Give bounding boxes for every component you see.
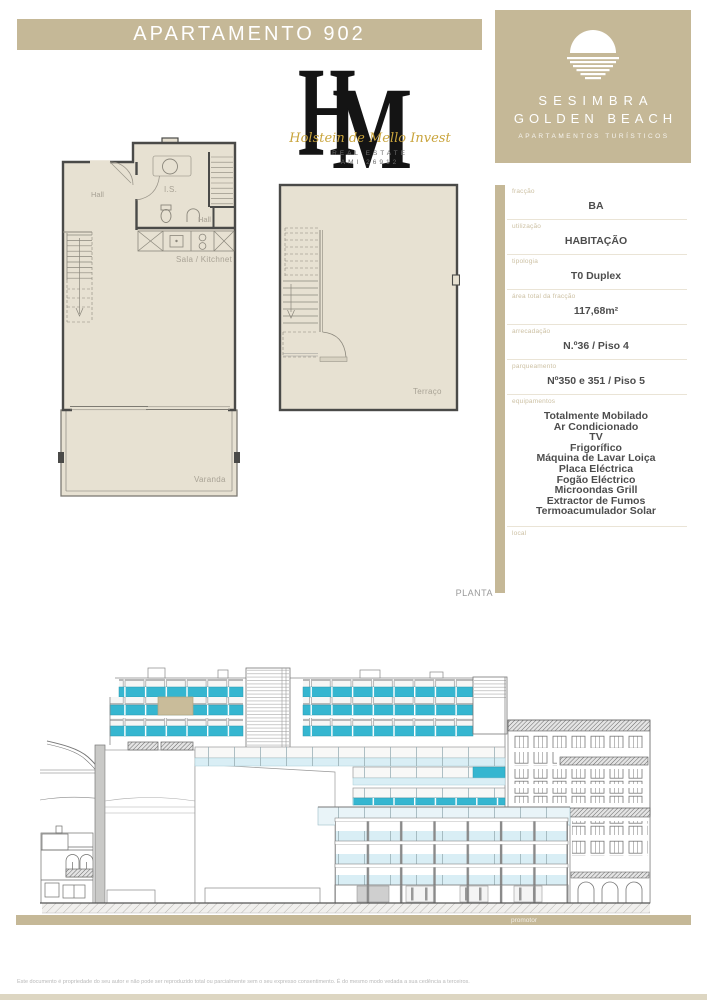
hm-agency-logo: H M Holstein de Mello Invest REAL ESTATE… xyxy=(280,60,460,180)
floor-plan-lower: Hall I.S. Hall Sala / Kitchnet Varanda xyxy=(58,138,240,496)
section-pillar xyxy=(95,745,105,903)
field-line: Termoacumulador Solar xyxy=(505,506,687,517)
field-label: fracção xyxy=(505,185,691,195)
title-banner: APARTAMENTO 902 xyxy=(17,19,482,50)
field-row: fracçãoBA xyxy=(505,185,691,220)
floor-plans: Hall I.S. Hall Sala / Kitchnet Varanda xyxy=(55,135,460,505)
apartment-902-marker xyxy=(158,697,193,715)
label-terrace: Terraço xyxy=(413,387,442,396)
field-label: parqueamento xyxy=(505,360,691,370)
field-value: T0 Duplex xyxy=(505,270,687,282)
field-value: N.º36 / Piso 4 xyxy=(505,340,687,352)
label-living-kitchenette: Sala / Kitchnet xyxy=(176,255,233,264)
field-spacer xyxy=(505,554,691,612)
field-label: tipologia xyxy=(505,255,691,265)
field-row: arrecadaçãoN.º36 / Piso 4 xyxy=(505,325,691,360)
field-row: equipamentosTotalmente MobiladoAr Condic… xyxy=(505,395,691,527)
floor-plan-upper: Terraço xyxy=(280,185,460,410)
field-label: equipamentos xyxy=(505,395,691,405)
field-row: utilizaçãoHABITAÇÃO xyxy=(505,220,691,255)
field-value: HABITAÇÃO xyxy=(505,235,687,247)
field-row: parqueamentoNº350 e 351 / Piso 5 xyxy=(505,360,691,395)
field-label: local xyxy=(505,527,691,537)
sun-icon xyxy=(558,26,628,84)
label-bathroom: I.S. xyxy=(164,185,177,194)
field-row: local xyxy=(505,527,691,612)
field-row: área total da fracção117,68m² xyxy=(505,290,691,325)
promoter-strip: promotor xyxy=(16,915,691,925)
hm-subline-realestate: REAL ESTATE xyxy=(280,150,460,157)
ground xyxy=(40,903,650,913)
hm-subline-ami: AMI 26912 xyxy=(280,159,460,166)
field-row: tipologiaT0 Duplex xyxy=(505,255,691,290)
field-line: Placa Eléctrica xyxy=(505,464,687,475)
resort-name-line2: GOLDEN BEACH xyxy=(509,111,677,126)
building-elevation xyxy=(35,645,695,917)
field-value: 117,68m² xyxy=(505,305,687,317)
field-label: área total da fracção xyxy=(505,290,691,300)
label-hall-small: Hall xyxy=(198,215,211,224)
old-building-section xyxy=(41,826,93,903)
promoter-label: promotor xyxy=(511,917,537,924)
label-hall: Hall xyxy=(91,190,104,199)
resort-tagline: APARTAMENTOS TURÍSTICOS xyxy=(516,133,669,140)
footer-disclaimer: Este documento é propriedade do seu auto… xyxy=(17,979,470,985)
details-fields: fracçãoBAutilizaçãoHABITAÇÃOtipologiaT0 … xyxy=(505,185,691,612)
hm-script-name: Holstein de Mello Invest xyxy=(280,131,460,146)
resort-name-line1: SESIMBRA xyxy=(532,93,653,108)
bottom-accent-strip xyxy=(0,994,707,1000)
section-label-planta: PLANTA xyxy=(435,588,493,598)
resort-logo-card: SESIMBRA GOLDEN BEACH APARTAMENTOS TURÍS… xyxy=(495,10,691,163)
section-roof-curves xyxy=(40,741,103,800)
center-walls xyxy=(105,750,335,903)
classical-building-b xyxy=(570,808,650,903)
field-lines: Totalmente MobiladoAr CondicionadoTVFrig… xyxy=(505,411,687,517)
label-balcony: Varanda xyxy=(194,475,226,484)
field-value: BA xyxy=(505,200,687,212)
field-label: arrecadação xyxy=(505,325,691,335)
field-line: Totalmente Mobilado xyxy=(505,411,687,422)
field-value xyxy=(505,542,687,547)
field-value: Nº350 e 351 / Piso 5 xyxy=(505,375,687,387)
property-datasheet: APARTAMENTO 902 H M Holstein de Mello In… xyxy=(0,0,707,1000)
panel-accent-bar xyxy=(495,185,505,593)
details-panel: fracçãoBAutilizaçãoHABITAÇÃOtipologiaT0 … xyxy=(495,185,691,593)
lower-building xyxy=(335,818,568,903)
field-label: utilização xyxy=(505,220,691,230)
